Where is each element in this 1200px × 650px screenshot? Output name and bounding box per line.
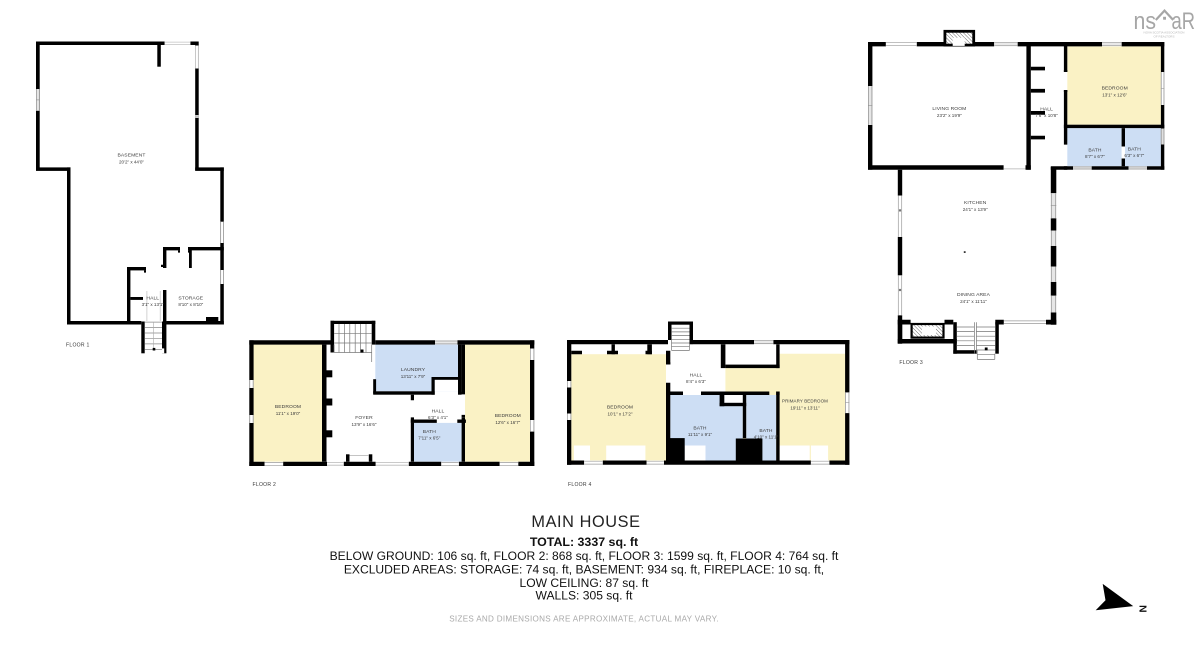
svg-text:TOTAL: 3337 sq. ft: TOTAL: 3337 sq. ft [530,535,638,549]
svg-text:LAUNDRY: LAUNDRY [401,367,426,373]
svg-text:6'3" x 6'7": 6'3" x 6'7" [1124,153,1144,158]
svg-text:6'3" x 4'1": 6'3" x 4'1" [428,415,448,420]
svg-text:7'6" x 10'8": 7'6" x 10'8" [1035,113,1058,118]
svg-text:N: N [1137,605,1149,613]
svg-text:8'10" x 8'10": 8'10" x 8'10" [178,302,203,307]
svg-text:OF REALTORS: OF REALTORS [1154,35,1175,39]
svg-text:BEDROOM: BEDROOM [1102,86,1128,92]
svg-text:HALL: HALL [690,373,703,379]
svg-text:BELOW GROUND: 106 sq. ft, FLOO: BELOW GROUND: 106 sq. ft, FLOOR 2: 868 s… [330,549,839,563]
svg-text:BEDROOM: BEDROOM [495,413,521,419]
svg-text:BATH: BATH [759,428,773,434]
svg-text:SIZES AND DIMENSIONS ARE APPRO: SIZES AND DIMENSIONS ARE APPROXIMATE, AC… [449,615,719,624]
svg-text:BEDROOM: BEDROOM [275,404,301,410]
svg-text:13'1" x 12'6": 13'1" x 12'6" [1102,92,1127,97]
svg-text:DINING AREA: DINING AREA [957,292,991,298]
svg-text:BATH: BATH [423,429,437,435]
svg-text:HALL: HALL [432,409,445,415]
svg-text:7'11" x 6'5": 7'11" x 6'5" [418,435,440,440]
svg-text:STORAGE: STORAGE [178,296,203,302]
svg-text:BASEMENT: BASEMENT [118,153,146,159]
svg-text:13'11" x 7'9": 13'11" x 7'9" [401,374,426,379]
svg-text:MAIN HOUSE: MAIN HOUSE [531,513,640,531]
svg-text:24'1" x 13'9": 24'1" x 13'9" [963,207,988,212]
svg-text:19'11" x 13'11": 19'11" x 13'11" [790,405,820,410]
svg-text:PRIMARY BEDROOM: PRIMARY BEDROOM [782,399,828,405]
svg-text:3'1" x 13'1": 3'1" x 13'1" [142,302,165,307]
svg-text:4'10" x 11'1": 4'10" x 11'1" [754,435,779,440]
svg-text:FLOOR 3: FLOOR 3 [899,360,923,366]
svg-text:13'9" x 16'6": 13'9" x 16'6" [352,422,377,427]
svg-text:12'6" x 16'7": 12'6" x 16'7" [495,420,520,425]
svg-text:8'4" x 6'3": 8'4" x 6'3" [686,379,706,384]
svg-text:23'2" x 19'9": 23'2" x 19'9" [937,113,962,118]
svg-text:BATH: BATH [1088,148,1102,154]
svg-text:FOYER: FOYER [355,415,373,421]
svg-text:WALLS: 305 sq. ft: WALLS: 305 sq. ft [535,589,633,603]
svg-text:HALL: HALL [1040,107,1053,113]
svg-text:10'1" x 17'2": 10'1" x 17'2" [608,411,633,416]
svg-text:KITCHEN: KITCHEN [964,200,987,206]
svg-text:FLOOR 1: FLOOR 1 [66,343,90,349]
svg-text:20'2" x 44'0": 20'2" x 44'0" [119,160,144,165]
svg-text:11'11" x 9'1": 11'11" x 9'1" [688,432,713,437]
svg-text:BEDROOM: BEDROOM [607,405,633,411]
svg-text:8'7" x 6'7": 8'7" x 6'7" [1085,154,1105,159]
svg-text:LIVING ROOM: LIVING ROOM [932,106,966,112]
svg-text:FLOOR 4: FLOOR 4 [568,482,592,488]
svg-text:HALL: HALL [146,296,159,302]
svg-text:11'1" x 19'0": 11'1" x 19'0" [276,411,301,416]
svg-text:FLOOR 2: FLOOR 2 [253,482,277,488]
svg-text:EXCLUDED AREAS: STORAGE: 74 sq: EXCLUDED AREAS: STORAGE: 74 sq. ft, BASE… [344,563,824,577]
svg-text:BATH: BATH [693,426,707,432]
svg-text:24'1" x 11'11": 24'1" x 11'11" [960,299,987,304]
svg-text:BATH: BATH [1128,147,1142,153]
